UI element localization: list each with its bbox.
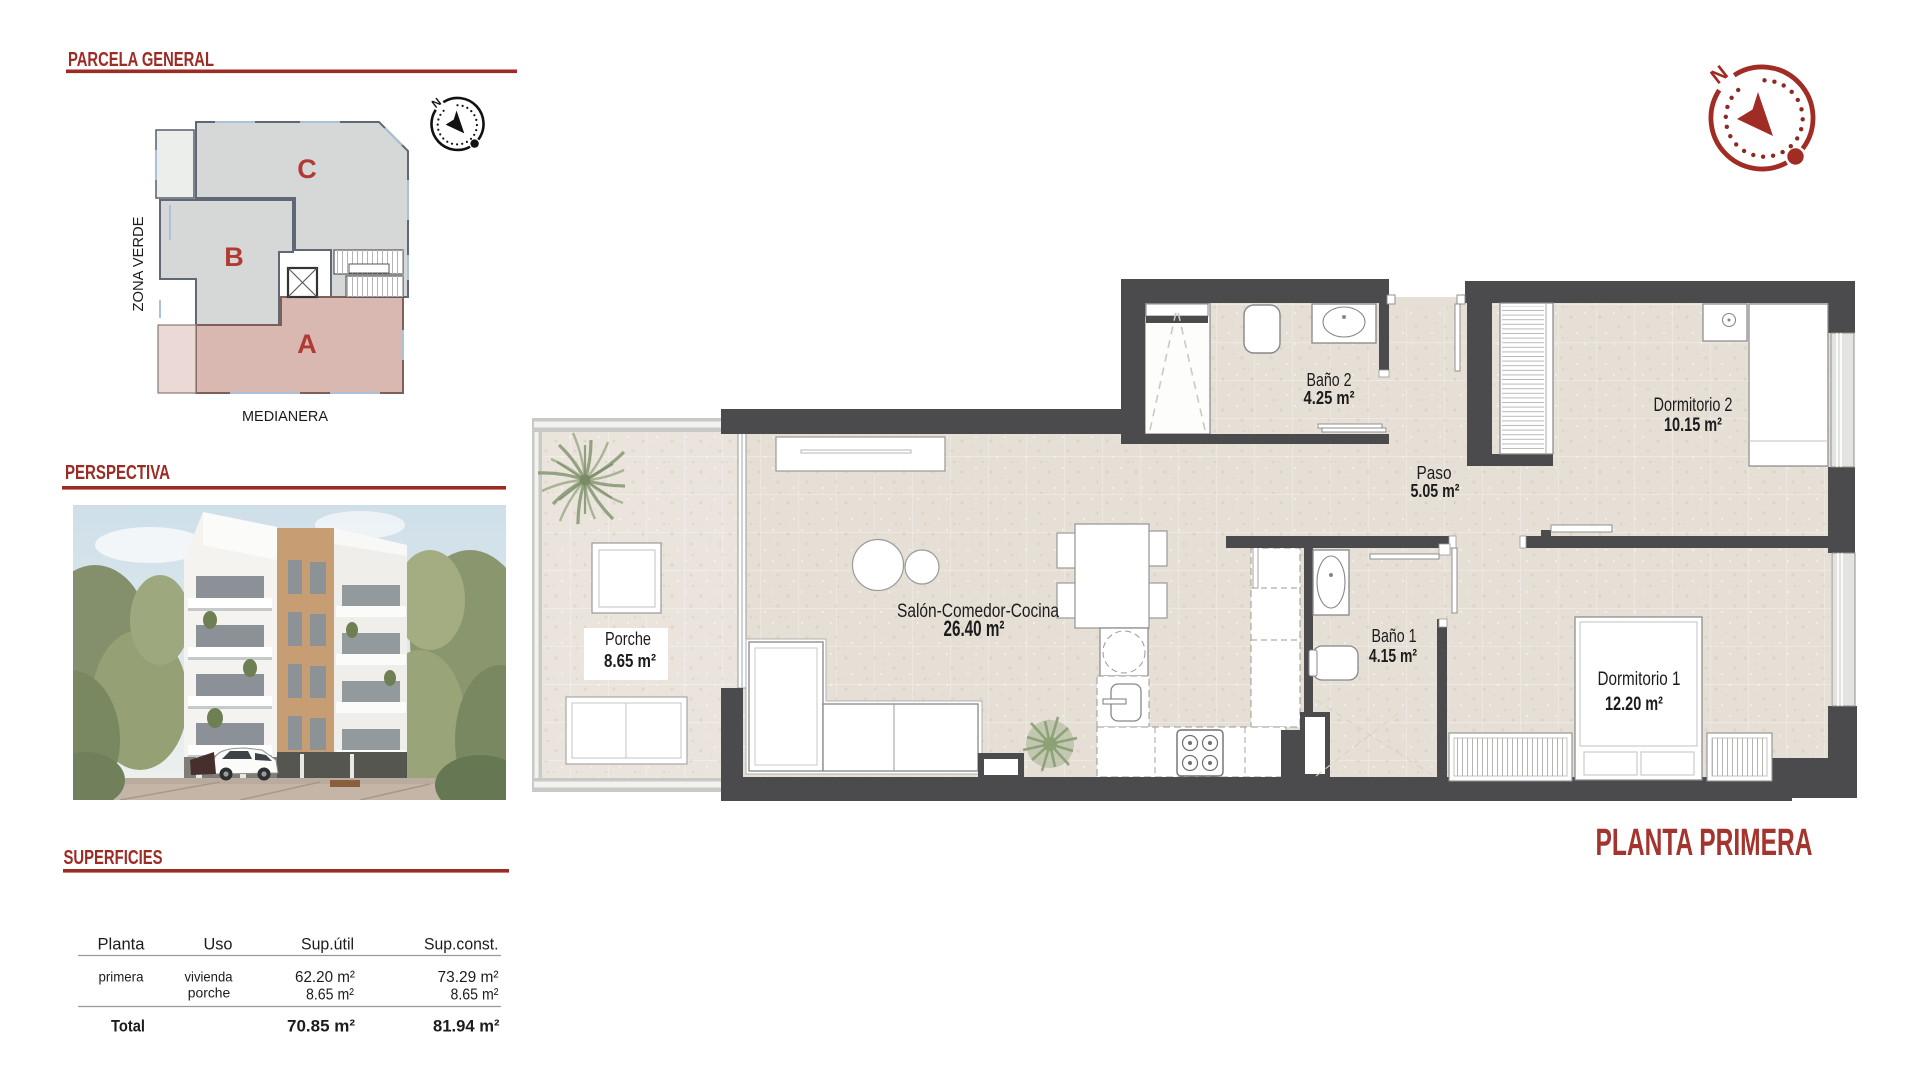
svg-text:Dormitorio 1: Dormitorio 1 bbox=[1598, 669, 1681, 690]
svg-text:PERSPECTIVA: PERSPECTIVA bbox=[65, 462, 170, 484]
svg-text:73.29 m²: 73.29 m² bbox=[438, 969, 500, 986]
svg-text:Planta: Planta bbox=[98, 935, 146, 954]
svg-text:N: N bbox=[1706, 61, 1732, 88]
svg-text:A: A bbox=[297, 329, 317, 359]
svg-text:porche: porche bbox=[188, 985, 231, 1001]
svg-text:B: B bbox=[224, 242, 244, 272]
svg-text:ZONA VERDE: ZONA VERDE bbox=[131, 216, 147, 311]
svg-text:Porche: Porche bbox=[605, 629, 651, 649]
svg-text:4.15 m²: 4.15 m² bbox=[1369, 645, 1417, 666]
svg-text:81.94 m²: 81.94 m² bbox=[433, 1017, 500, 1036]
svg-text:MEDIANERA: MEDIANERA bbox=[242, 409, 328, 425]
svg-text:5.05 m²: 5.05 m² bbox=[1411, 480, 1460, 501]
svg-text:8.65 m²: 8.65 m² bbox=[604, 650, 656, 671]
svg-text:10.15 m²: 10.15 m² bbox=[1664, 415, 1722, 436]
svg-text:PARCELA GENERAL: PARCELA GENERAL bbox=[68, 49, 214, 71]
svg-text:Baño 1: Baño 1 bbox=[1372, 626, 1417, 646]
svg-text:8.65 m²: 8.65 m² bbox=[306, 987, 355, 1004]
svg-text:12.20 m²: 12.20 m² bbox=[1605, 694, 1663, 715]
svg-text:26.40 m²: 26.40 m² bbox=[944, 616, 1005, 641]
svg-text:Total: Total bbox=[111, 1017, 145, 1036]
svg-text:PLANTA PRIMERA: PLANTA PRIMERA bbox=[1596, 822, 1813, 864]
svg-text:Sup.útil: Sup.útil bbox=[301, 935, 354, 954]
svg-text:C: C bbox=[297, 154, 317, 184]
svg-text:vivienda: vivienda bbox=[185, 969, 233, 985]
svg-text:62.20 m²: 62.20 m² bbox=[295, 969, 356, 986]
svg-text:primera: primera bbox=[99, 969, 144, 985]
svg-text:SUPERFICIES: SUPERFICIES bbox=[64, 847, 163, 869]
svg-text:70.85 m²: 70.85 m² bbox=[287, 1017, 355, 1036]
svg-text:Dormitorio 2: Dormitorio 2 bbox=[1654, 395, 1733, 416]
svg-text:Uso: Uso bbox=[204, 935, 233, 954]
svg-text:4.25 m²: 4.25 m² bbox=[1304, 387, 1355, 408]
svg-text:8.65 m²: 8.65 m² bbox=[451, 987, 500, 1004]
svg-text:N: N bbox=[430, 96, 444, 111]
svg-text:Sup.const.: Sup.const. bbox=[424, 935, 499, 954]
